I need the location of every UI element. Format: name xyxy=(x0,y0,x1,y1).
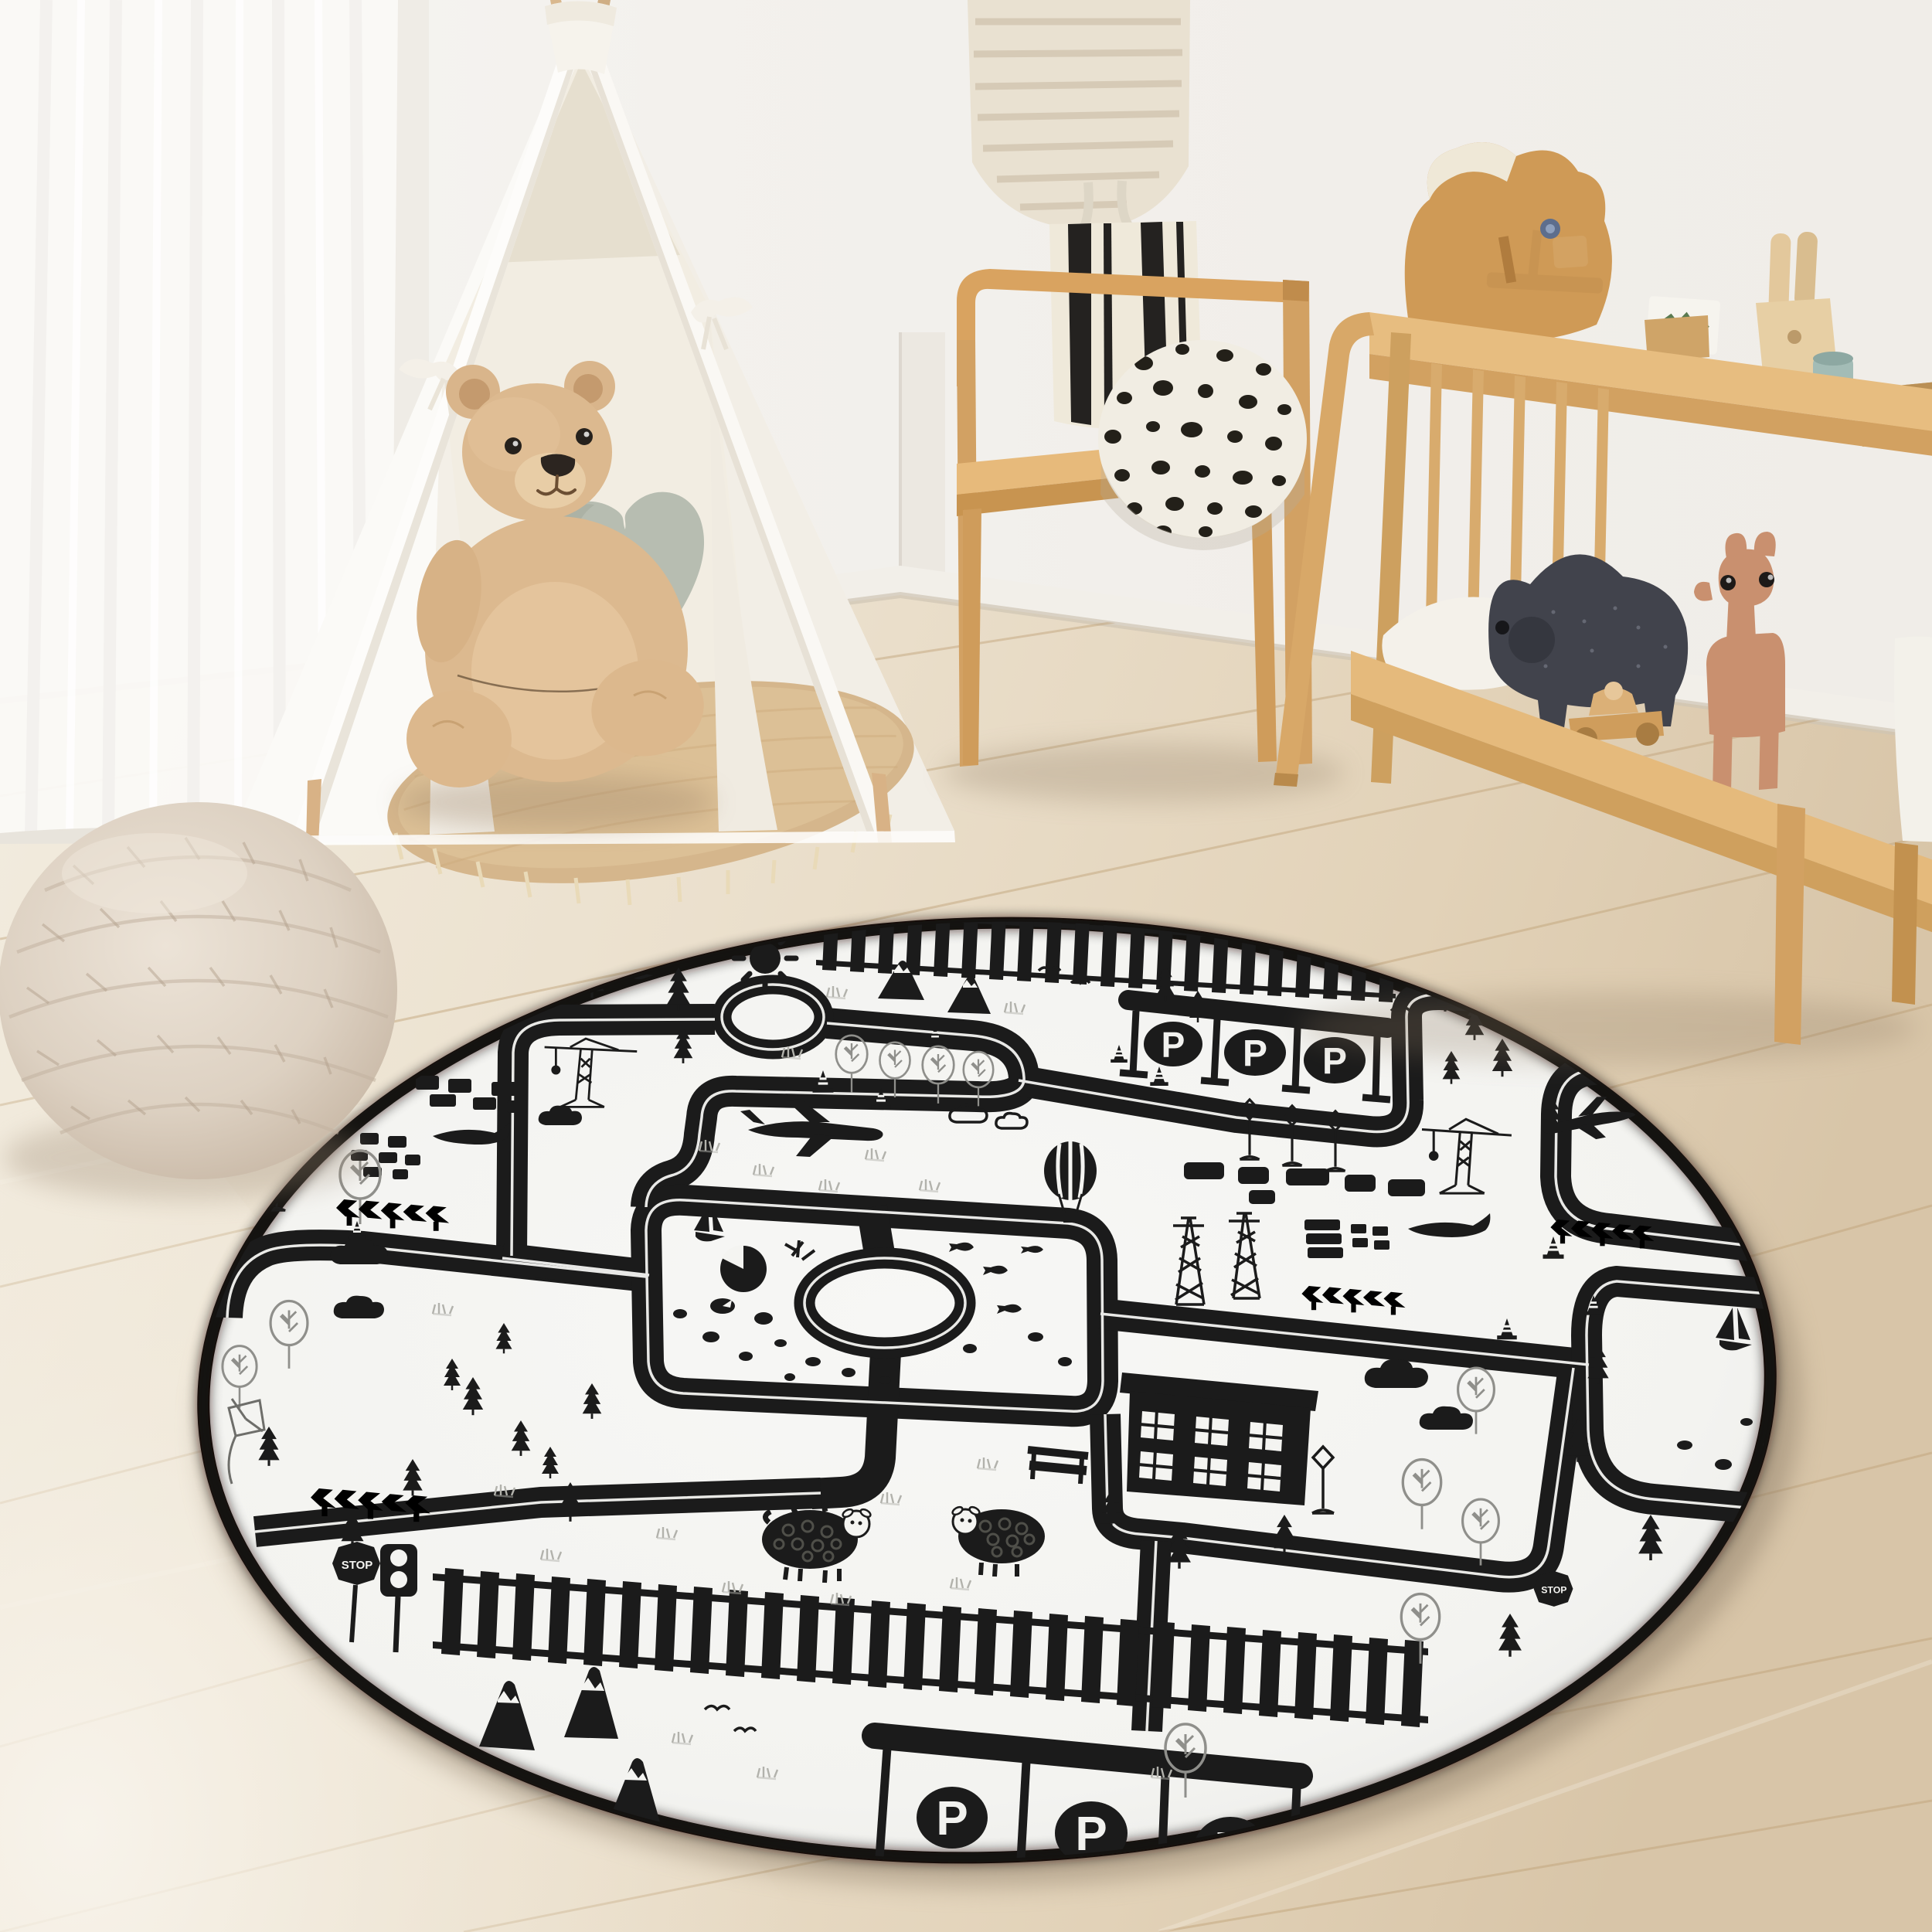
svg-text:STOP: STOP xyxy=(1541,1585,1566,1596)
svg-text:P: P xyxy=(936,1792,968,1845)
svg-text:P: P xyxy=(1322,1041,1347,1082)
svg-text:STOP: STOP xyxy=(342,1559,373,1572)
svg-text:P: P xyxy=(1243,1033,1267,1074)
svg-text:P: P xyxy=(1162,1025,1185,1065)
